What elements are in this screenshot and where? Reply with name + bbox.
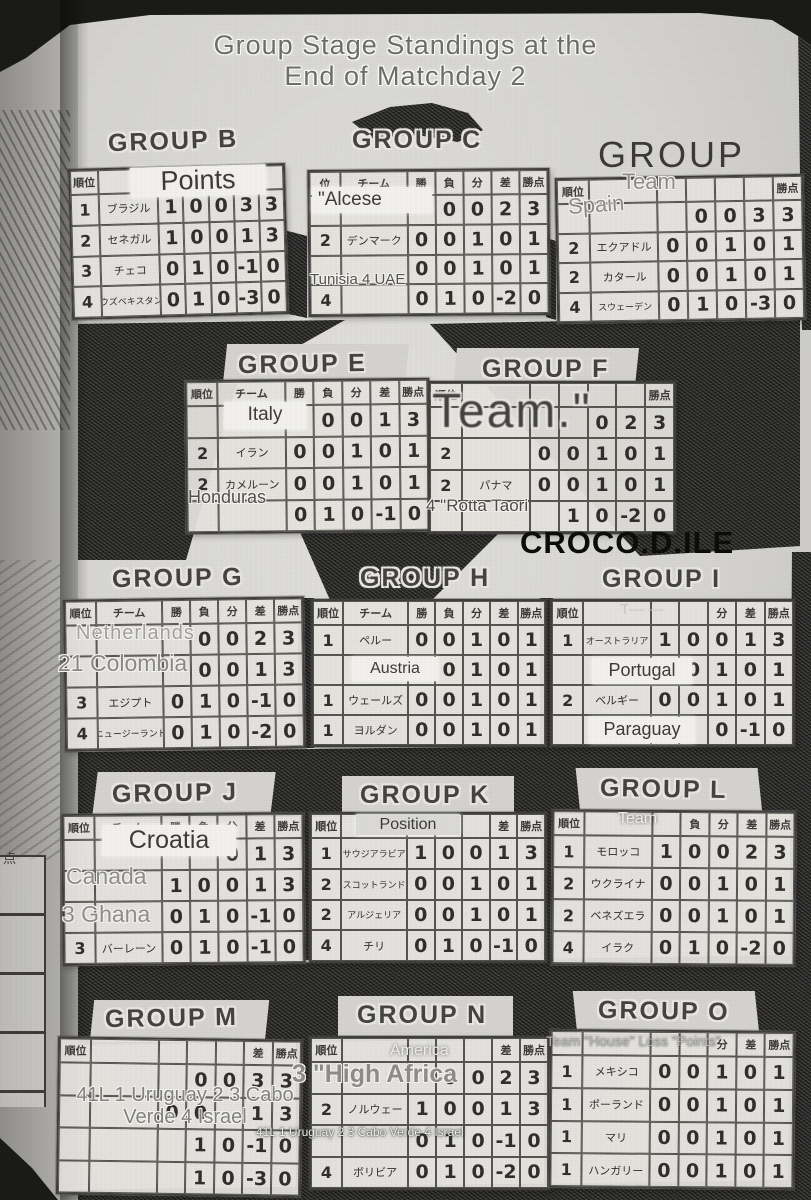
team-cell: チリ bbox=[341, 930, 407, 961]
header-cell: 勝点 bbox=[645, 383, 674, 407]
rank-cell: 1 bbox=[313, 685, 343, 715]
header-cell: 分 bbox=[708, 601, 736, 625]
stat-cell: 3 bbox=[519, 194, 547, 224]
stat-cell: 0 bbox=[709, 836, 738, 868]
stat-cell: 1 bbox=[462, 869, 490, 900]
overlay-team-label-f: Team." bbox=[432, 386, 592, 439]
header-cell: 順位 bbox=[63, 816, 94, 840]
stat-cell: 1 bbox=[464, 224, 492, 254]
stat-cell: 0 bbox=[164, 717, 192, 748]
stat-cell: 0 bbox=[275, 900, 303, 931]
stat-cell: 3 bbox=[744, 200, 773, 230]
stat-cell: 0 bbox=[219, 931, 247, 962]
stat-cell: 0 bbox=[219, 654, 247, 685]
stat-cell: 0 bbox=[286, 436, 315, 468]
header-cell: 分 bbox=[709, 812, 738, 836]
stat-cell: 1 bbox=[708, 655, 736, 685]
stat-cell: 0 bbox=[163, 686, 191, 717]
stat-cell: 1 bbox=[463, 655, 490, 685]
header-cell: 勝点 bbox=[766, 813, 795, 837]
group-e-title: GROUP E bbox=[238, 349, 367, 380]
rank-cell: 2 bbox=[311, 869, 341, 900]
team-cell: セネガル bbox=[99, 223, 159, 255]
rank-cell: 4 bbox=[559, 292, 591, 322]
stat-cell: 1 bbox=[765, 869, 794, 901]
team-cell: ベルギー bbox=[583, 685, 650, 715]
team-cell: チェコ bbox=[100, 254, 160, 286]
stat-cell: 2 bbox=[616, 407, 645, 438]
page-title-line1: Group Stage Standings at the bbox=[0, 30, 811, 61]
rank-cell: 1 bbox=[550, 1153, 582, 1186]
stat-cell: 1 bbox=[518, 685, 545, 715]
stat-cell: 1 bbox=[192, 717, 220, 748]
header-cell bbox=[679, 601, 707, 625]
rank-cell: 2 bbox=[553, 899, 585, 931]
header-cell: 負 bbox=[313, 381, 342, 405]
stat-cell: 0 bbox=[616, 438, 645, 469]
stat-cell: 0 bbox=[314, 405, 343, 437]
stat-cell: 1 bbox=[520, 253, 548, 283]
stat-cell: 0 bbox=[736, 1057, 765, 1090]
header-cell bbox=[462, 814, 490, 838]
stat-cell: 0 bbox=[435, 195, 463, 225]
stat-cell: 0 bbox=[408, 1157, 436, 1189]
header-cell: 順位 bbox=[60, 1038, 92, 1062]
stat-cell: 0 bbox=[462, 930, 490, 961]
overlay-team-house-loss-points: Team "House" Loss "Points" bbox=[546, 1034, 721, 1049]
stat-cell: 1 bbox=[435, 930, 463, 961]
stat-cell: 1 bbox=[518, 655, 545, 685]
stat-cell: 1 bbox=[463, 685, 490, 715]
stat-cell: 1 bbox=[707, 1056, 736, 1089]
stat-cell: 1 bbox=[688, 290, 717, 320]
overlay-ghana-label: 3 Ghana bbox=[62, 902, 150, 927]
rank-cell: 1 bbox=[551, 1120, 583, 1153]
stat-cell: 1 bbox=[736, 625, 764, 655]
team-cell: マリ bbox=[582, 1121, 650, 1154]
stat-cell: 3 bbox=[773, 200, 802, 230]
overlay-spain-label: Spain bbox=[567, 191, 625, 219]
team-cell: イラク bbox=[584, 931, 652, 963]
rank-cell: 1 bbox=[551, 1055, 583, 1088]
stat-cell: 1 bbox=[246, 869, 274, 900]
stat-cell: 0 bbox=[214, 1162, 243, 1195]
overlay-team-label-l: Team bbox=[618, 810, 657, 828]
group-i-title: GROUP I bbox=[602, 565, 721, 594]
header-cell: 差 bbox=[736, 601, 764, 625]
stat-cell: 1 bbox=[464, 254, 492, 284]
stat-cell: 0 bbox=[435, 715, 462, 745]
stat-cell: 0 bbox=[407, 900, 435, 931]
stat-cell: 0 bbox=[492, 254, 520, 284]
stat-cell: 0 bbox=[678, 1122, 707, 1155]
team-cell: デンマーク bbox=[341, 225, 408, 255]
overlay-honduras-label: Honduras bbox=[188, 488, 266, 508]
stat-cell: 0 bbox=[736, 655, 764, 685]
rank-cell: 4 bbox=[73, 286, 102, 318]
watermark-crocodile: CROCO.D.ILE bbox=[520, 526, 734, 560]
header-cell: 分 bbox=[463, 170, 491, 194]
stat-cell: 0 bbox=[371, 467, 400, 499]
rank-cell: 2 bbox=[558, 263, 590, 293]
team-cell: オーストラリア bbox=[583, 625, 650, 655]
stat-cell: 0 bbox=[408, 625, 435, 655]
stat-cell: 0 bbox=[464, 1125, 492, 1157]
stat-cell: 3 bbox=[399, 404, 428, 436]
header-cell: 順位 bbox=[552, 601, 583, 625]
stat-cell: 1 bbox=[185, 253, 211, 284]
stat-cell: 1 bbox=[463, 625, 490, 655]
header-cell: 順位 bbox=[70, 170, 98, 195]
stat-cell: 0 bbox=[219, 685, 247, 716]
stat-cell: 0 bbox=[659, 290, 688, 320]
team-cell bbox=[89, 1160, 157, 1193]
overlay-alcese-label: "Alcese bbox=[312, 187, 432, 213]
stat-cell: 0 bbox=[314, 468, 343, 500]
stat-cell: 0 bbox=[687, 231, 716, 261]
stat-cell: 1 bbox=[399, 435, 428, 467]
stat-cell: 0 bbox=[678, 1154, 707, 1187]
stat-cell: 0 bbox=[530, 470, 559, 501]
stat-cell: 1 bbox=[707, 1122, 736, 1155]
stat-cell: 0 bbox=[435, 224, 463, 254]
stat-cell: -1 bbox=[247, 931, 275, 962]
page-title-line2: End of Matchday 2 bbox=[0, 61, 811, 92]
stat-cell: 0 bbox=[679, 1056, 708, 1089]
stat-cell: 1 bbox=[651, 625, 679, 655]
stat-cell: 1 bbox=[765, 685, 793, 715]
rank-cell: 1 bbox=[313, 625, 343, 655]
header-cell: 勝点 bbox=[518, 601, 545, 625]
overlay-team-label-d: Team bbox=[622, 170, 676, 194]
stat-cell: 0 bbox=[520, 1125, 548, 1157]
stat-cell: 0 bbox=[436, 254, 464, 284]
team-cell: ボリビア bbox=[342, 1157, 408, 1189]
stat-cell: 1 bbox=[162, 870, 190, 901]
header-cell: 負 bbox=[681, 812, 710, 836]
stat-cell: 1 bbox=[680, 932, 709, 964]
overlay-team-header-i: T— — bbox=[620, 602, 663, 619]
overlay-rotta-taori-label: 4 "Rotta Taori bbox=[426, 497, 528, 516]
stat-cell: 3 bbox=[275, 869, 303, 900]
stat-cell: 0 bbox=[490, 685, 517, 715]
team-cell: モロッコ bbox=[584, 835, 652, 867]
header-cell bbox=[744, 176, 773, 201]
stat-cell: 0 bbox=[435, 838, 463, 869]
rank-cell: 4 bbox=[310, 285, 341, 315]
rank-cell: 2 bbox=[72, 225, 101, 257]
stat-cell: 0 bbox=[650, 1121, 679, 1154]
rank-cell: 4 bbox=[552, 931, 584, 963]
stat-cell: 1 bbox=[645, 438, 674, 469]
stat-cell: 1 bbox=[764, 1122, 793, 1155]
stat-cell: 1 bbox=[765, 901, 794, 933]
stat-cell: 0 bbox=[680, 900, 709, 932]
header-cell: 勝点 bbox=[274, 814, 302, 838]
stat-cell: 0 bbox=[490, 655, 517, 685]
stat-cell: 0 bbox=[191, 655, 219, 686]
rank-cell: 1 bbox=[551, 1088, 583, 1121]
stat-cell: 1 bbox=[462, 900, 490, 931]
rank-cell: 4 bbox=[67, 718, 98, 749]
stat-cell: -3 bbox=[242, 1162, 271, 1195]
stat-cell: 1 bbox=[764, 1155, 793, 1188]
adjacent-page-art bbox=[0, 560, 60, 860]
stat-cell: 0 bbox=[463, 194, 491, 224]
team-cell: バーレーン bbox=[95, 932, 162, 964]
stat-cell: 0 bbox=[559, 470, 588, 501]
rank-cell bbox=[58, 1127, 90, 1160]
overlay-canada-label: Canada bbox=[66, 864, 147, 889]
stat-cell: 0 bbox=[436, 1094, 464, 1126]
overlay-america-label: America bbox=[390, 1042, 449, 1060]
group-n-title: GROUP N bbox=[357, 1001, 487, 1030]
rank-cell: 1 bbox=[553, 835, 585, 867]
stat-cell: 0 bbox=[490, 869, 518, 900]
rank-cell bbox=[552, 655, 583, 685]
stat-cell: 0 bbox=[765, 715, 793, 745]
stat-cell: 0 bbox=[490, 900, 518, 931]
stat-cell: 0 bbox=[160, 253, 186, 284]
header-cell: 差 bbox=[244, 1041, 273, 1065]
stat-cell: 3 bbox=[766, 837, 795, 869]
stat-cell: 3 bbox=[520, 1062, 548, 1094]
stat-cell: 0 bbox=[275, 931, 303, 962]
stat-cell: 1 bbox=[588, 470, 617, 501]
stat-cell: 0 bbox=[162, 901, 190, 932]
stat-cell: 0 bbox=[260, 251, 286, 282]
stat-cell: 0 bbox=[211, 283, 237, 314]
header-cell: 順位 bbox=[313, 601, 343, 625]
stat-cell: 0 bbox=[679, 685, 707, 715]
rank-cell bbox=[552, 715, 583, 745]
stat-cell: 0 bbox=[708, 932, 737, 964]
stat-cell: 1 bbox=[520, 224, 548, 254]
group-g-title: GROUP G bbox=[112, 563, 244, 594]
team-cell: ウェールズ bbox=[343, 685, 408, 715]
group-c-title: GROUP C bbox=[352, 126, 482, 155]
team-cell: ブラジル bbox=[98, 193, 158, 225]
team-cell: エジプト bbox=[97, 686, 164, 718]
stat-cell: -3 bbox=[746, 289, 775, 319]
stat-cell: 0 bbox=[520, 283, 548, 313]
stat-cell: 0 bbox=[400, 498, 429, 530]
stat-cell: 0 bbox=[717, 289, 746, 319]
stat-cell: 1 bbox=[652, 836, 681, 868]
scanned-book-page: 点 Group Stage Standings at the End of Ma… bbox=[0, 0, 811, 1200]
stat-cell: 0 bbox=[737, 868, 766, 900]
stat-cell: 1 bbox=[588, 438, 617, 469]
stat-cell bbox=[157, 1161, 186, 1194]
header-cell bbox=[464, 1038, 492, 1062]
stat-cell: 0 bbox=[408, 254, 436, 284]
stat-cell: 0 bbox=[735, 1155, 764, 1188]
stat-cell: 1 bbox=[463, 715, 490, 745]
stat-cell: 0 bbox=[218, 623, 246, 654]
stat-cell: 0 bbox=[680, 868, 709, 900]
stat-cell: 0 bbox=[745, 230, 774, 260]
overlay-portugal-label: Portugal bbox=[592, 658, 692, 684]
overlay-points-label: Points bbox=[130, 164, 267, 198]
rank-cell: 3 bbox=[64, 933, 95, 964]
stat-cell: 3 bbox=[274, 622, 302, 653]
stat-cell: 1 bbox=[190, 901, 218, 932]
stat-cell: 1 bbox=[774, 259, 803, 289]
stat-cell bbox=[658, 202, 687, 232]
team-cell: ニュージーランド bbox=[97, 717, 164, 749]
header-cell: 負 bbox=[190, 600, 218, 624]
stat-cell: 1 bbox=[774, 229, 803, 259]
page-title: Group Stage Standings at the End of Matc… bbox=[0, 30, 811, 92]
overlay-uruguay-note: 41L 1 Uruguay 2 3 Cabo Verde 4 Israel bbox=[58, 1084, 312, 1128]
stat-cell: 1 bbox=[708, 900, 737, 932]
header-cell: 勝点 bbox=[517, 814, 545, 838]
stat-cell: 0 bbox=[490, 715, 517, 745]
group-f-title: GROUP F bbox=[482, 355, 609, 384]
header-cell: 順位 bbox=[311, 814, 341, 838]
overlay-netherlands-label: Netherlands bbox=[76, 622, 195, 644]
team-cell: スウェーデン bbox=[591, 291, 660, 322]
rank-cell: 2 bbox=[553, 867, 585, 899]
stat-cell: -1 bbox=[372, 499, 401, 531]
rank-cell bbox=[313, 655, 343, 685]
header-cell: 勝点 bbox=[274, 598, 302, 622]
stat-cell: 3 bbox=[520, 1094, 548, 1126]
stat-cell: 1 bbox=[191, 686, 219, 717]
stat-cell: -1 bbox=[247, 685, 275, 716]
rank-cell: 1 bbox=[313, 715, 343, 745]
stat-cell: 0 bbox=[220, 716, 248, 747]
header-cell: 勝点 bbox=[773, 176, 802, 201]
stat-cell: 0 bbox=[680, 836, 709, 868]
header-cell: 勝点 bbox=[519, 170, 547, 194]
stat-cell: 1 bbox=[436, 284, 464, 314]
group-o-title: GROUP O bbox=[598, 996, 730, 1027]
stat-cell: 0 bbox=[464, 1157, 492, 1189]
stat-cell: 1 bbox=[408, 1094, 436, 1126]
stat-cell: 1 bbox=[191, 932, 219, 963]
stat-cell: 1 bbox=[343, 467, 372, 499]
stat-cell: 0 bbox=[464, 1094, 492, 1126]
rank-cell: 4 bbox=[311, 1157, 342, 1189]
stat-cell: 1 bbox=[518, 715, 545, 745]
stat-cell: 1 bbox=[765, 1057, 794, 1090]
stat-cell: -1 bbox=[492, 1125, 520, 1157]
stat-cell: 0 bbox=[343, 499, 372, 531]
stat-cell: 1 bbox=[708, 685, 736, 715]
rank-cell: 1 bbox=[71, 194, 100, 226]
team-cell: ペルー bbox=[343, 625, 408, 655]
stat-cell: 1 bbox=[709, 868, 738, 900]
team-cell: ハンガリー bbox=[582, 1153, 650, 1186]
stat-cell: 3 bbox=[259, 220, 285, 251]
group-l-title: GROUP L bbox=[600, 774, 728, 805]
header-cell: 勝点 bbox=[765, 1033, 794, 1057]
stat-cell: 3 bbox=[517, 838, 545, 869]
team-cell: サウジアラビア bbox=[341, 838, 407, 869]
stat-cell: 0 bbox=[275, 684, 303, 715]
team-cell: イラン bbox=[218, 437, 286, 469]
team-cell: ポーランド bbox=[582, 1088, 650, 1121]
header-cell bbox=[715, 177, 744, 202]
overlay-colombia-label: 21 Colombia bbox=[58, 651, 187, 676]
stat-cell: 0 bbox=[650, 1056, 679, 1089]
group-o-table: 分差勝点1メキシコ001011ポーランド001011マリ001011ハンガリー0… bbox=[548, 1029, 795, 1190]
stat-cell: 1 bbox=[159, 223, 185, 254]
stat-cell: 1 bbox=[765, 655, 793, 685]
stat-cell: -3 bbox=[236, 282, 262, 313]
stat-cell: 0 bbox=[775, 288, 804, 318]
stat-cell: -1 bbox=[736, 715, 764, 745]
stat-cell: 0 bbox=[616, 470, 645, 501]
stat-cell: 0 bbox=[435, 625, 462, 655]
stat-cell: 0 bbox=[435, 655, 462, 685]
group-h-title: GROUP H bbox=[360, 564, 490, 593]
team-cell: ウズベキスタン bbox=[101, 285, 161, 317]
header-cell: 勝 bbox=[162, 600, 190, 624]
overlay-uruguay-note-small: 41L 1 Uruguay 2 3 Cabo Verde 4 Israel bbox=[256, 1126, 464, 1139]
header-cell: 順位 bbox=[186, 382, 218, 406]
stat-cell: 1 bbox=[234, 220, 260, 251]
stat-cell: 0 bbox=[407, 930, 435, 961]
header-cell: 差 bbox=[246, 599, 274, 623]
rank-cell: 2 bbox=[552, 685, 583, 715]
overlay-italy-label: Italy bbox=[224, 402, 306, 429]
stat-cell: 0 bbox=[708, 715, 736, 745]
rank-cell: 2 bbox=[430, 438, 462, 469]
stat-cell: 1 bbox=[490, 838, 518, 869]
team-cell: ウクライナ bbox=[584, 867, 652, 899]
rank-cell: 2 bbox=[187, 437, 219, 469]
stat-cell: 0 bbox=[408, 284, 436, 314]
stat-cell: 0 bbox=[715, 201, 744, 231]
stat-cell: 0 bbox=[765, 933, 794, 965]
stat-cell: 1 bbox=[342, 436, 371, 468]
team-cell: カタール bbox=[590, 261, 659, 292]
stat-cell: 1 bbox=[707, 1155, 736, 1188]
stat-cell: 0 bbox=[342, 404, 371, 436]
rank-cell: 3 bbox=[72, 256, 101, 288]
rank-cell bbox=[186, 406, 218, 438]
header-cell: 差 bbox=[737, 812, 766, 836]
stat-cell: 0 bbox=[435, 685, 462, 715]
stat-cell: 0 bbox=[209, 221, 235, 252]
stat-cell: 0 bbox=[659, 261, 688, 291]
stat-cell: 2 bbox=[491, 194, 519, 224]
header-cell: 差 bbox=[736, 1033, 765, 1057]
stat-cell: 0 bbox=[652, 868, 681, 900]
stat-cell: 1 bbox=[407, 838, 435, 869]
stat-cell: 0 bbox=[559, 438, 588, 469]
stat-cell: 1 bbox=[400, 467, 429, 499]
stat-cell: 3 bbox=[645, 407, 674, 438]
stat-cell: 1 bbox=[645, 470, 674, 501]
stat-cell: 0 bbox=[708, 625, 736, 655]
rank-cell: 1 bbox=[311, 838, 341, 869]
team-cell: ベネズエラ bbox=[584, 899, 652, 931]
header-cell: 勝点 bbox=[399, 380, 428, 404]
stat-cell: 2 bbox=[737, 836, 766, 868]
header-cell bbox=[159, 1040, 188, 1064]
stat-cell: 0 bbox=[651, 932, 680, 964]
stat-cell: 1 bbox=[186, 1129, 215, 1162]
stat-cell: 0 bbox=[407, 869, 435, 900]
stat-cell: 0 bbox=[408, 685, 435, 715]
team-cell bbox=[462, 438, 530, 469]
rank-cell: 2 bbox=[558, 233, 590, 263]
header-cell: 負 bbox=[435, 171, 463, 195]
group-m-title: GROUP M bbox=[105, 1003, 238, 1034]
